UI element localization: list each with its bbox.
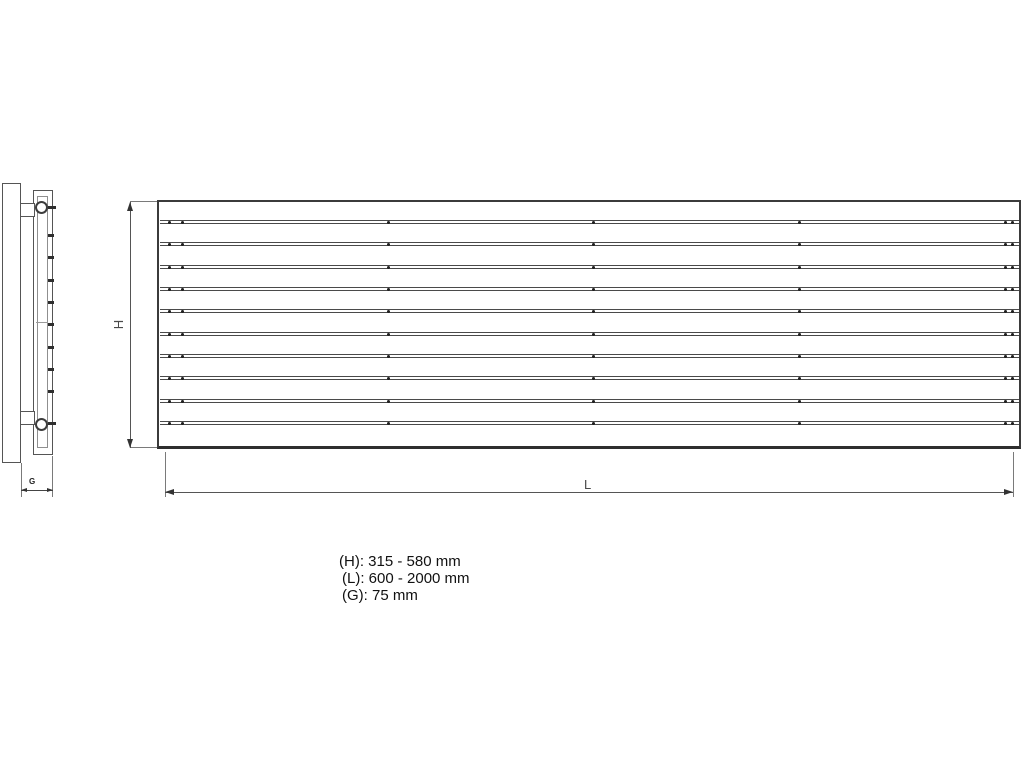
weld-dot	[387, 422, 390, 425]
weld-dot	[181, 377, 184, 380]
weld-dot	[181, 422, 184, 425]
length-arrow-left-icon	[165, 489, 174, 495]
weld-dot	[1011, 400, 1014, 403]
dimension-specs: (H): 315 - 580 mm (L): 600 - 2000 mm (G)…	[339, 553, 470, 604]
weld-dot	[168, 288, 171, 291]
weld-dot	[1004, 266, 1007, 269]
weld-dot	[592, 266, 595, 269]
weld-dot	[592, 310, 595, 313]
weld-dot	[168, 221, 171, 224]
depth-arrow-left-icon	[21, 488, 27, 492]
side-groove-tick	[48, 301, 54, 304]
weld-dot	[1011, 422, 1014, 425]
weld-dot	[1011, 310, 1014, 313]
top-valve-tick	[48, 206, 56, 209]
spec-height-range: (H): 315 - 580 mm	[339, 553, 470, 570]
side-groove-tick	[48, 346, 54, 349]
weld-dot	[181, 221, 184, 224]
weld-dot	[798, 377, 801, 380]
weld-dot	[168, 355, 171, 358]
weld-dot	[1011, 221, 1014, 224]
weld-dot	[387, 243, 390, 246]
weld-dot	[1011, 243, 1014, 246]
weld-dot	[181, 243, 184, 246]
weld-dot	[181, 266, 184, 269]
radiator-groove-line	[160, 332, 1019, 336]
weld-dot	[387, 221, 390, 224]
weld-dot	[1004, 221, 1007, 224]
weld-dot	[592, 377, 595, 380]
weld-dot	[1004, 310, 1007, 313]
weld-dot	[798, 333, 801, 336]
weld-dot	[592, 243, 595, 246]
bottom-valve-tick	[48, 422, 56, 425]
weld-dot	[1004, 422, 1007, 425]
top-connection-pipe	[20, 203, 35, 217]
radiator-groove-line	[160, 354, 1019, 358]
radiator-groove-line	[160, 242, 1019, 246]
spec-depth-value: (G): 75 mm	[339, 587, 470, 604]
weld-dot	[168, 400, 171, 403]
weld-dot	[592, 221, 595, 224]
radiator-groove-line	[160, 220, 1019, 224]
weld-dot	[798, 400, 801, 403]
weld-dot	[168, 243, 171, 246]
spec-length-range: (L): 600 - 2000 mm	[339, 570, 470, 587]
weld-dot	[592, 333, 595, 336]
weld-dot	[1011, 377, 1014, 380]
weld-dot	[1004, 400, 1007, 403]
height-arrow-down-icon	[127, 439, 133, 448]
weld-dot	[592, 400, 595, 403]
weld-dot	[168, 377, 171, 380]
side-groove-tick	[48, 279, 54, 282]
weld-dot	[181, 310, 184, 313]
height-dim-label: H	[112, 320, 125, 329]
radiator-groove-line	[160, 399, 1019, 403]
weld-dot	[798, 243, 801, 246]
weld-dot	[592, 422, 595, 425]
height-arrow-up-icon	[127, 202, 133, 211]
weld-dot	[168, 310, 171, 313]
side-panel-midline	[36, 322, 48, 323]
weld-dot	[798, 288, 801, 291]
depth-dim-label: G	[29, 478, 35, 486]
wall-bracket-plate	[2, 183, 21, 463]
weld-dot	[798, 221, 801, 224]
height-dimension-line	[130, 202, 131, 448]
weld-dot	[168, 266, 171, 269]
bottom-valve-circle	[35, 418, 48, 431]
weld-dot	[181, 333, 184, 336]
weld-dot	[1011, 355, 1014, 358]
weld-dot	[1011, 266, 1014, 269]
weld-dot	[181, 355, 184, 358]
side-groove-tick	[48, 390, 54, 393]
radiator-groove-line	[160, 265, 1019, 269]
depth-arrow-right-icon	[47, 488, 53, 492]
bottom-connection-pipe	[20, 411, 35, 425]
radiator-groove-line	[160, 376, 1019, 380]
height-extension-top	[130, 201, 157, 202]
weld-dot	[387, 333, 390, 336]
height-extension-bottom	[130, 447, 157, 448]
weld-dot	[1004, 243, 1007, 246]
weld-dot	[181, 400, 184, 403]
weld-dot	[1011, 288, 1014, 291]
radiator-technical-drawing: G H L (H): 315 - 580 mm (L): 600 - 2000 …	[0, 0, 1024, 768]
side-groove-tick	[48, 323, 54, 326]
weld-dot	[592, 355, 595, 358]
weld-dot	[1004, 333, 1007, 336]
side-groove-tick	[48, 256, 54, 259]
weld-dot	[798, 310, 801, 313]
radiator-groove-line	[160, 287, 1019, 291]
weld-dot	[1004, 377, 1007, 380]
weld-dot	[592, 288, 595, 291]
side-groove-tick	[48, 368, 54, 371]
weld-dot	[387, 310, 390, 313]
side-groove-tick	[48, 234, 54, 237]
weld-dot	[798, 422, 801, 425]
weld-dot	[798, 355, 801, 358]
weld-dot	[387, 288, 390, 291]
length-arrow-right-icon	[1004, 489, 1013, 495]
weld-dot	[168, 333, 171, 336]
length-extension-right	[1013, 452, 1014, 497]
radiator-groove-line	[160, 421, 1019, 425]
length-dimension-line	[165, 492, 1013, 493]
weld-dot	[181, 288, 184, 291]
radiator-front-outline	[157, 200, 1021, 449]
weld-dot	[387, 355, 390, 358]
weld-dot	[387, 400, 390, 403]
top-valve-circle	[35, 201, 48, 214]
weld-dot	[387, 266, 390, 269]
radiator-groove-line	[160, 309, 1019, 313]
weld-dot	[1011, 333, 1014, 336]
weld-dot	[798, 266, 801, 269]
length-dim-label: L	[584, 478, 591, 491]
weld-dot	[387, 377, 390, 380]
weld-dot	[168, 422, 171, 425]
weld-dot	[1004, 355, 1007, 358]
weld-dot	[1004, 288, 1007, 291]
